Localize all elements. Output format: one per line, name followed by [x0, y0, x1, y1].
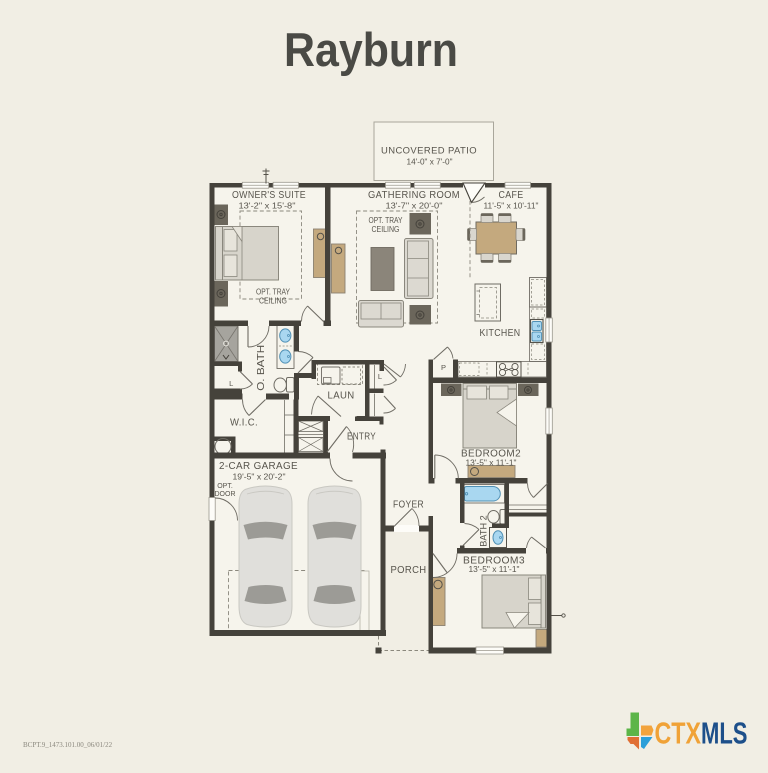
svg-text:MLS: MLS — [701, 717, 748, 751]
svg-text:DOOR: DOOR — [215, 491, 236, 498]
svg-text:BCPT.9_1473.101.00_06/01/22: BCPT.9_1473.101.00_06/01/22 — [23, 741, 113, 749]
svg-text:14'-0" x 7'-0": 14'-0" x 7'-0" — [407, 157, 453, 167]
svg-text:CEILING: CEILING — [372, 225, 400, 234]
svg-text:13'-7" x 20'-0": 13'-7" x 20'-0" — [386, 201, 443, 211]
svg-text:13'-5" x 11'-1": 13'-5" x 11'-1" — [466, 458, 517, 468]
svg-text:OWNER'S SUITE: OWNER'S SUITE — [232, 189, 306, 201]
svg-text:P: P — [441, 363, 446, 372]
svg-text:GATHERING ROOM: GATHERING ROOM — [368, 189, 460, 201]
svg-text:CEILING: CEILING — [259, 297, 287, 306]
svg-text:CAFE: CAFE — [499, 189, 524, 201]
svg-text:OPT. TRAY: OPT. TRAY — [256, 288, 291, 297]
svg-text:O. BATH: O. BATH — [255, 345, 267, 391]
svg-text:CTX: CTX — [655, 717, 702, 751]
svg-text:13'-2" x 15'-8": 13'-2" x 15'-8" — [239, 201, 296, 211]
svg-text:UNCOVERED PATIO: UNCOVERED PATIO — [381, 146, 477, 156]
svg-text:BATH 2: BATH 2 — [479, 515, 490, 547]
svg-text:PORCH: PORCH — [391, 564, 427, 576]
svg-text:OPT.: OPT. — [217, 483, 233, 490]
svg-text:KITCHEN: KITCHEN — [480, 327, 521, 339]
svg-text:13'-5" x 11'-1": 13'-5" x 11'-1" — [469, 564, 520, 574]
svg-text:11'-5" x 10'-11": 11'-5" x 10'-11" — [484, 201, 539, 211]
svg-text:L: L — [229, 379, 233, 388]
svg-text:L: L — [378, 372, 382, 381]
svg-text:ENTRY: ENTRY — [347, 431, 376, 443]
svg-text:19'-5" x 20'-2": 19'-5" x 20'-2" — [233, 472, 286, 482]
svg-text:LAUN: LAUN — [328, 390, 355, 402]
svg-text:Rayburn: Rayburn — [284, 23, 458, 76]
svg-text:OPT. TRAY: OPT. TRAY — [369, 216, 404, 225]
svg-text:W.I.C.: W.I.C. — [230, 417, 258, 429]
svg-text:2-CAR GARAGE: 2-CAR GARAGE — [219, 460, 298, 472]
svg-text:FOYER: FOYER — [393, 499, 424, 511]
